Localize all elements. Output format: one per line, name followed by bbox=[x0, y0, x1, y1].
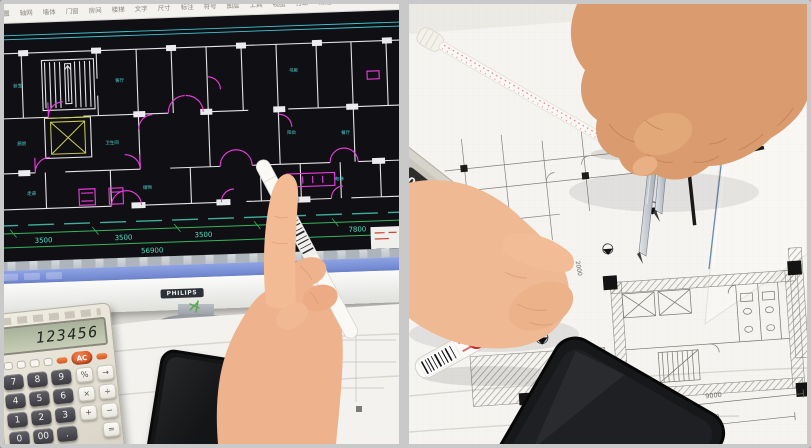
thumb-over-pencil bbox=[502, 233, 574, 272]
cad-menu-item: 工具 bbox=[249, 4, 262, 9]
svg-text:56900: 56900 bbox=[141, 246, 164, 255]
svg-text:阳台: 阳台 bbox=[287, 129, 297, 136]
cad-walls bbox=[4, 40, 399, 211]
calculator-key: 00 bbox=[33, 428, 54, 444]
marker-cap bbox=[495, 286, 558, 337]
svg-text:2000: 2000 bbox=[574, 260, 584, 276]
corner-columns bbox=[511, 260, 807, 420]
svg-text:厨房: 厨房 bbox=[17, 140, 27, 147]
calculator-key: × bbox=[77, 385, 95, 402]
hand-creases bbox=[505, 272, 553, 325]
svg-text:电梯: 电梯 bbox=[335, 175, 345, 182]
cad-menu-item: 帮助 bbox=[318, 4, 331, 6]
calculator-key: 2 bbox=[31, 409, 52, 426]
ce-key bbox=[96, 352, 107, 359]
calculator-key: 0 bbox=[9, 430, 30, 444]
memory-key bbox=[43, 357, 53, 366]
cad-menu-item: 楼梯 bbox=[111, 4, 124, 14]
photo-collage: 设置轴网墙体门窗房间楼梯文字尺寸标注符号图层工具视图打印帮助 bbox=[0, 0, 811, 448]
cad-menu-item: 图层 bbox=[226, 4, 239, 10]
pencil-lead bbox=[617, 146, 622, 151]
svg-text:走道: 走道 bbox=[27, 190, 37, 197]
svg-text:7800: 7800 bbox=[348, 225, 366, 234]
smartphone bbox=[139, 348, 279, 444]
cad-elevator bbox=[44, 117, 91, 155]
calculator-key: 6 bbox=[53, 388, 74, 405]
fingertip-shadow bbox=[275, 193, 299, 208]
memory-key bbox=[30, 358, 40, 367]
drafting-left-hand bbox=[409, 180, 581, 349]
knuckle-creases bbox=[609, 108, 793, 162]
ac-key: AC bbox=[70, 350, 93, 365]
svg-text:储物: 储物 bbox=[143, 184, 153, 191]
calculator-corner-keys: 0 00 1 2 4 7 bbox=[409, 144, 433, 246]
calculator-key: 7 bbox=[4, 374, 24, 391]
pencil bbox=[414, 25, 625, 157]
philips-logo: PHILIPS bbox=[160, 288, 203, 298]
sheet-blue-edge bbox=[709, 88, 730, 269]
drafting-compass bbox=[637, 78, 675, 264]
fist-thumb bbox=[628, 106, 697, 163]
blueprint-upper-plan bbox=[438, 78, 778, 321]
calculator: 123456 AC 789456123000. %→×÷+−= bbox=[4, 302, 126, 444]
fist-holding-compass bbox=[571, 4, 807, 180]
cad-menu-item: 文字 bbox=[134, 4, 147, 13]
svg-text:客厅: 客厅 bbox=[115, 77, 125, 84]
marker-pen bbox=[411, 286, 558, 383]
shadows bbox=[409, 148, 759, 386]
taskbar-button bbox=[24, 273, 40, 281]
svg-text:书房: 书房 bbox=[289, 67, 299, 74]
blueprint-columns bbox=[286, 376, 362, 426]
fingertip bbox=[629, 152, 660, 179]
cad-menu-item: 房间 bbox=[88, 4, 101, 14]
calculator-screws bbox=[409, 199, 455, 276]
svg-text:餐厅: 餐厅 bbox=[341, 129, 351, 136]
calculator-keypad: 789456123000. %→×÷+−= bbox=[4, 364, 118, 444]
number-keys: 789456123000. bbox=[4, 369, 78, 444]
cad-monitor: 设置轴网墙体门窗房间楼梯文字尺寸标注符号图层工具视图打印帮助 bbox=[4, 4, 399, 334]
cad-room-labels: 卧室 客厅 书房 厨房 卫生间 阳台 餐厅 走道 储物 电梯 bbox=[13, 65, 353, 198]
power-key bbox=[56, 356, 67, 363]
svg-text:00: 00 bbox=[409, 174, 425, 195]
operator-keys: %→×÷+−= bbox=[75, 364, 120, 440]
cad-menu-item: 设置 bbox=[4, 7, 10, 17]
pencil-tip bbox=[602, 136, 620, 152]
calculator-key: → bbox=[96, 364, 114, 381]
pencil-pink-pattern bbox=[444, 45, 603, 137]
cad-command-area bbox=[370, 226, 399, 250]
left-photo-panel: 设置轴网墙体门窗房间楼梯文字尺寸标注符号图层工具视图打印帮助 bbox=[4, 4, 399, 444]
marker-checker-band bbox=[485, 315, 507, 342]
pencil-eraser-cap bbox=[414, 25, 446, 54]
svg-text:3500: 3500 bbox=[194, 231, 212, 240]
svg-text:3500: 3500 bbox=[274, 228, 292, 237]
svg-text:30700: 30700 bbox=[698, 413, 719, 423]
calculator-corner: 0 00 1 2 4 7 bbox=[409, 124, 467, 313]
calculator-key: 5 bbox=[29, 390, 50, 407]
taskbar-button bbox=[4, 273, 18, 281]
smartphone-corner bbox=[437, 330, 732, 444]
cad-menu-item: 轴网 bbox=[20, 6, 33, 16]
calculator-key: + bbox=[79, 404, 97, 421]
cad-screen: 卧室 客厅 书房 厨房 卫生间 阳台 餐厅 走道 储物 电梯 bbox=[4, 10, 399, 263]
benchmark-symbols bbox=[527, 201, 667, 345]
calculator-key: 4 bbox=[5, 393, 26, 410]
svg-text:3500: 3500 bbox=[114, 233, 132, 242]
cad-menu-item: 视图 bbox=[272, 4, 285, 8]
cad-menu-item: 符号 bbox=[203, 4, 216, 10]
memory-key bbox=[4, 361, 13, 370]
blueprint-dimensions: 9000 30700 3400 2000 bbox=[512, 245, 806, 444]
cad-guide-lines bbox=[4, 22, 399, 41]
cad-menu-item: 尺寸 bbox=[157, 4, 170, 12]
calculator-key: % bbox=[75, 366, 93, 383]
taskbar-button bbox=[46, 272, 62, 280]
svg-text:3500: 3500 bbox=[35, 236, 53, 245]
calculator-key: . bbox=[57, 425, 78, 442]
svg-text:卫生间: 卫生间 bbox=[105, 139, 119, 146]
drafting-scene: 9000 30700 3400 2000 0 00 1 bbox=[409, 4, 807, 444]
cad-menu-item: 门窗 bbox=[65, 5, 78, 15]
blueprint-sheets bbox=[409, 4, 807, 444]
memory-key bbox=[17, 360, 27, 369]
calculator-key: ÷ bbox=[98, 383, 116, 400]
cad-floorplan: 卧室 客厅 书房 厨房 卫生间 阳台 餐厅 走道 储物 电梯 bbox=[4, 10, 399, 263]
cad-menu-item: 打印 bbox=[295, 4, 308, 7]
calculator-key: 1 bbox=[7, 411, 28, 428]
svg-text:3400: 3400 bbox=[539, 421, 556, 430]
marker-no-symbol bbox=[464, 327, 488, 351]
right-photo-panel: 9000 30700 3400 2000 0 00 1 bbox=[409, 4, 807, 444]
marker-barcode bbox=[418, 342, 462, 377]
svg-text:卧室: 卧室 bbox=[13, 82, 23, 89]
monitor-stand bbox=[154, 304, 238, 340]
calculator-key: − bbox=[100, 402, 118, 419]
folded-fingers bbox=[501, 272, 581, 341]
calculator-key: 3 bbox=[55, 406, 76, 423]
svg-text:9000: 9000 bbox=[705, 391, 722, 401]
calculator-key: = bbox=[102, 421, 120, 438]
cad-menu-item: 墙体 bbox=[42, 6, 55, 16]
sheet-border-frame bbox=[687, 147, 771, 225]
calculator-key: 8 bbox=[27, 371, 48, 388]
blueprint-core-plan: 9000 30700 3400 2000 bbox=[460, 191, 807, 444]
cad-menu-item: 标注 bbox=[180, 4, 193, 11]
calculator-key: 9 bbox=[51, 369, 72, 386]
upper-stair bbox=[689, 83, 715, 145]
